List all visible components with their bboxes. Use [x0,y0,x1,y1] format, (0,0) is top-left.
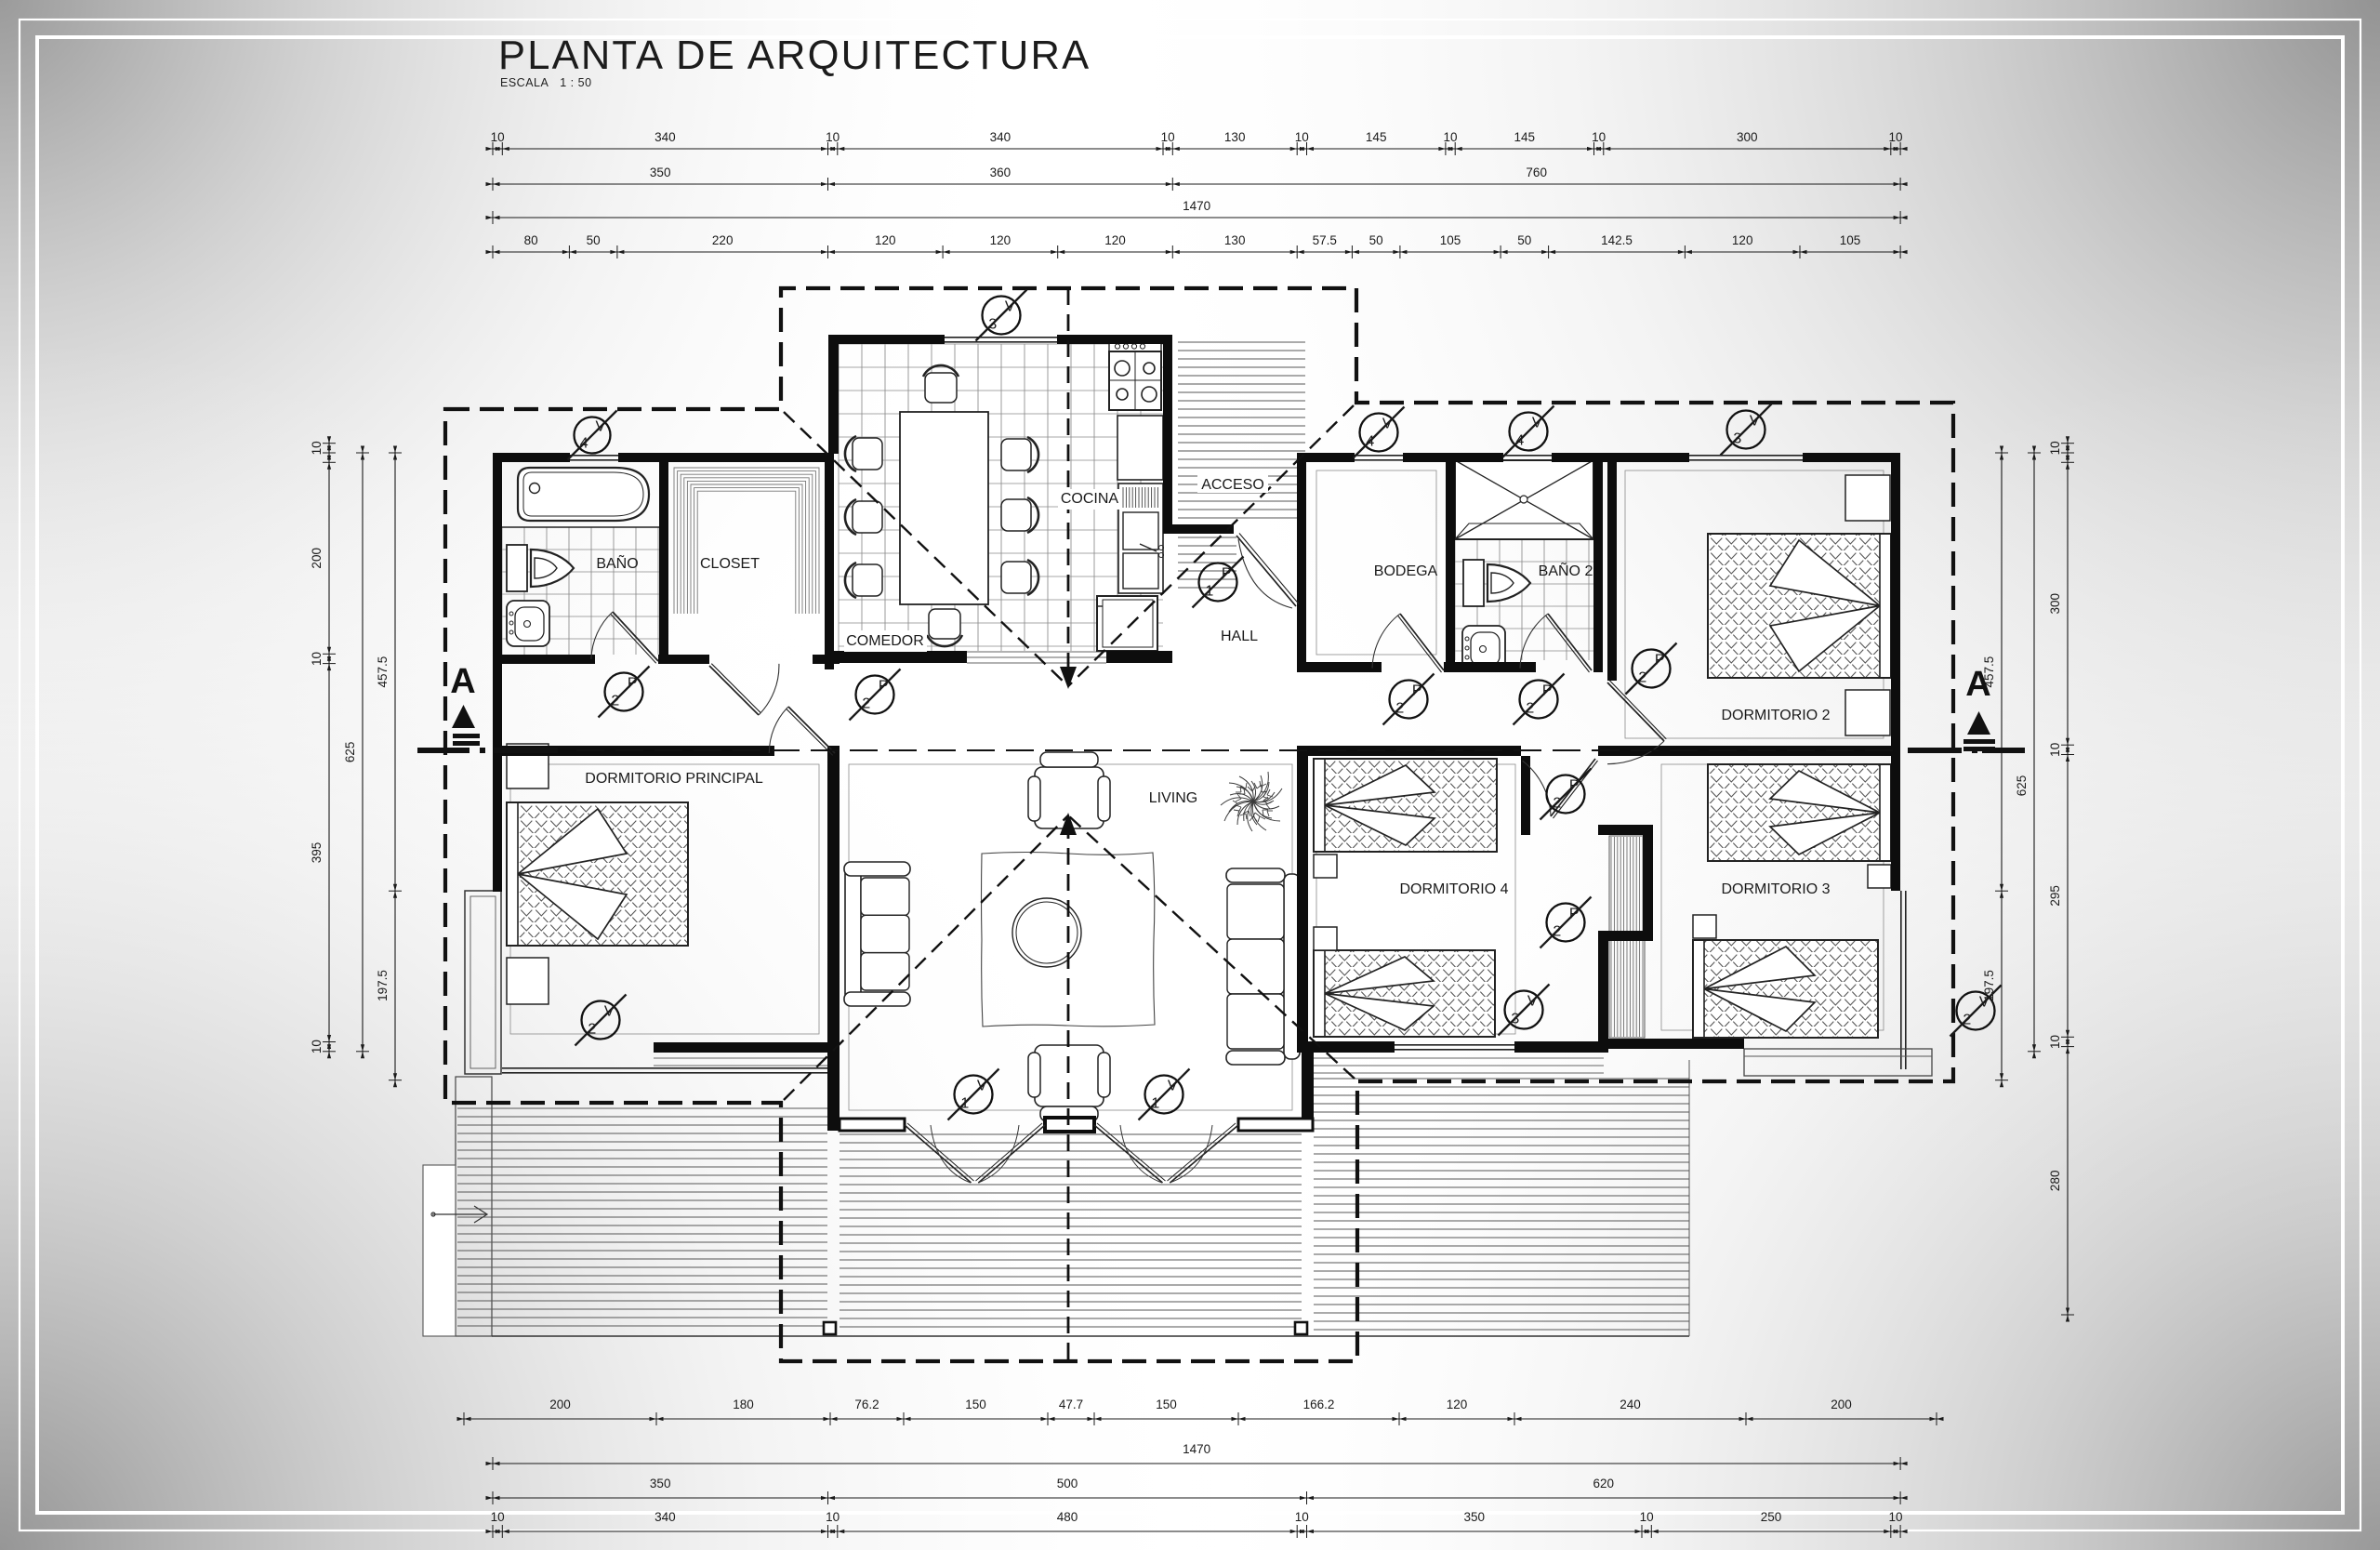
svg-text:V: V [604,1004,615,1020]
svg-text:10: 10 [310,652,324,666]
svg-text:80: 80 [524,233,538,247]
svg-text:P: P [1569,907,1580,922]
svg-text:BODEGA: BODEGA [1374,563,1438,579]
svg-text:V: V [1168,1079,1178,1094]
svg-text:625: 625 [343,742,357,763]
svg-text:P: P [1655,653,1665,669]
svg-text:2: 2 [862,696,870,711]
svg-text:DORMITORIO 4: DORMITORIO 4 [1399,881,1508,897]
svg-text:300: 300 [1737,130,1758,144]
svg-text:105: 105 [1440,233,1461,247]
svg-text:2: 2 [1638,669,1646,685]
svg-text:COMEDOR: COMEDOR [846,633,924,649]
svg-text:625: 625 [2015,775,2029,797]
svg-text:BAÑO 2: BAÑO 2 [1539,561,1593,579]
svg-text:2: 2 [1526,700,1534,716]
svg-text:10: 10 [1592,130,1606,144]
svg-text:P: P [628,676,638,692]
svg-text:V: V [595,419,605,435]
svg-text:V: V [1005,299,1015,315]
svg-text:300: 300 [2048,593,2062,615]
svg-text:120: 120 [1732,233,1753,247]
svg-text:V: V [977,1079,987,1094]
svg-text:340: 340 [654,1510,676,1524]
svg-text:145: 145 [1366,130,1387,144]
svg-text:197.5: 197.5 [376,970,390,1001]
svg-text:120: 120 [1447,1398,1468,1411]
svg-text:3: 3 [988,316,997,332]
svg-text:200: 200 [1831,1398,1852,1411]
svg-text:2: 2 [588,1021,596,1037]
svg-text:10: 10 [310,441,324,455]
svg-text:V: V [1532,416,1542,431]
svg-text:10: 10 [1888,130,1902,144]
svg-text:120: 120 [1104,233,1126,247]
svg-text:105: 105 [1840,233,1861,247]
svg-text:457.5: 457.5 [376,656,390,688]
svg-text:180: 180 [733,1398,754,1411]
svg-text:47.7: 47.7 [1059,1398,1083,1411]
svg-text:10: 10 [826,1510,840,1524]
svg-text:120: 120 [990,233,1011,247]
svg-text:10: 10 [2048,1035,2062,1049]
svg-text:DORMITORIO 3: DORMITORIO 3 [1721,881,1830,897]
svg-text:10: 10 [1443,130,1457,144]
svg-text:50: 50 [1517,233,1531,247]
svg-text:350: 350 [1464,1510,1486,1524]
svg-text:P: P [1542,683,1553,699]
svg-text:4: 4 [1515,432,1524,448]
svg-text:220: 220 [712,233,734,247]
svg-text:DORMITORIO PRINCIPAL: DORMITORIO PRINCIPAL [585,771,763,787]
svg-text:50: 50 [1369,233,1383,247]
svg-text:145: 145 [1514,130,1536,144]
svg-text:130: 130 [1224,130,1246,144]
svg-text:150: 150 [965,1398,986,1411]
svg-text:4: 4 [1366,433,1374,449]
svg-text:10: 10 [1888,1510,1902,1524]
svg-text:10: 10 [310,1040,324,1053]
svg-text:P: P [879,679,889,695]
svg-text:350: 350 [650,1477,671,1490]
svg-text:LIVING: LIVING [1149,790,1197,806]
svg-text:360: 360 [990,166,1011,179]
svg-text:1470: 1470 [1183,199,1210,213]
svg-text:2: 2 [1553,923,1561,939]
svg-text:3: 3 [1733,431,1741,446]
svg-text:10: 10 [2048,441,2062,455]
svg-text:10: 10 [1295,130,1309,144]
svg-text:620: 620 [1593,1477,1615,1490]
svg-text:V: V [1527,994,1538,1010]
svg-text:4: 4 [580,436,588,452]
svg-text:1: 1 [1151,1095,1159,1111]
svg-text:1: 1 [960,1095,969,1111]
svg-text:ESCALA 1 : 50: ESCALA 1 : 50 [500,76,592,89]
svg-text:CLOSET: CLOSET [700,556,760,572]
svg-text:50: 50 [587,233,601,247]
svg-text:10: 10 [491,130,505,144]
svg-text:COCINA: COCINA [1061,491,1119,507]
svg-text:760: 760 [1526,166,1547,179]
svg-text:ACCESO: ACCESO [1201,477,1264,493]
svg-text:57.5: 57.5 [1313,233,1337,247]
svg-text:BAÑO: BAÑO [596,553,638,572]
svg-text:10: 10 [1161,130,1175,144]
svg-text:A: A [1965,665,1990,704]
svg-text:120: 120 [875,233,896,247]
svg-text:1: 1 [1205,583,1213,599]
svg-text:P: P [1569,778,1580,794]
svg-text:P: P [1222,566,1232,582]
svg-text:166.2: 166.2 [1303,1398,1335,1411]
svg-text:480: 480 [1057,1510,1078,1524]
svg-text:340: 340 [654,130,676,144]
svg-text:250: 250 [1761,1510,1782,1524]
svg-text:V: V [1979,995,1990,1011]
svg-text:HALL: HALL [1221,629,1258,644]
svg-text:V: V [1382,417,1393,432]
svg-text:240: 240 [1620,1398,1641,1411]
svg-text:2: 2 [1963,1012,1971,1027]
svg-text:A: A [450,662,475,701]
svg-text:PLANTA DE ARQUITECTURA: PLANTA DE ARQUITECTURA [498,33,1091,78]
svg-text:295: 295 [2048,885,2062,907]
svg-text:142.5: 142.5 [1601,233,1633,247]
svg-text:3: 3 [1511,1011,1519,1027]
svg-text:280: 280 [2048,1171,2062,1192]
svg-text:2: 2 [611,693,619,709]
svg-text:395: 395 [310,842,324,864]
svg-text:2: 2 [1395,700,1404,716]
svg-text:10: 10 [491,1510,505,1524]
svg-text:200: 200 [549,1398,571,1411]
svg-text:500: 500 [1057,1477,1078,1490]
svg-text:10: 10 [1295,1510,1309,1524]
svg-text:76.2: 76.2 [854,1398,879,1411]
svg-text:350: 350 [650,166,671,179]
svg-text:1470: 1470 [1183,1442,1210,1456]
svg-text:10: 10 [2048,743,2062,757]
svg-text:P: P [1412,683,1422,699]
svg-text:DORMITORIO 2: DORMITORIO 2 [1721,708,1830,723]
svg-text:150: 150 [1156,1398,1177,1411]
svg-text:340: 340 [990,130,1011,144]
svg-text:V: V [1750,414,1760,430]
svg-text:10: 10 [826,130,840,144]
svg-text:2: 2 [1553,795,1561,811]
svg-text:130: 130 [1224,233,1246,247]
svg-text:10: 10 [1640,1510,1654,1524]
svg-text:200: 200 [310,548,324,569]
